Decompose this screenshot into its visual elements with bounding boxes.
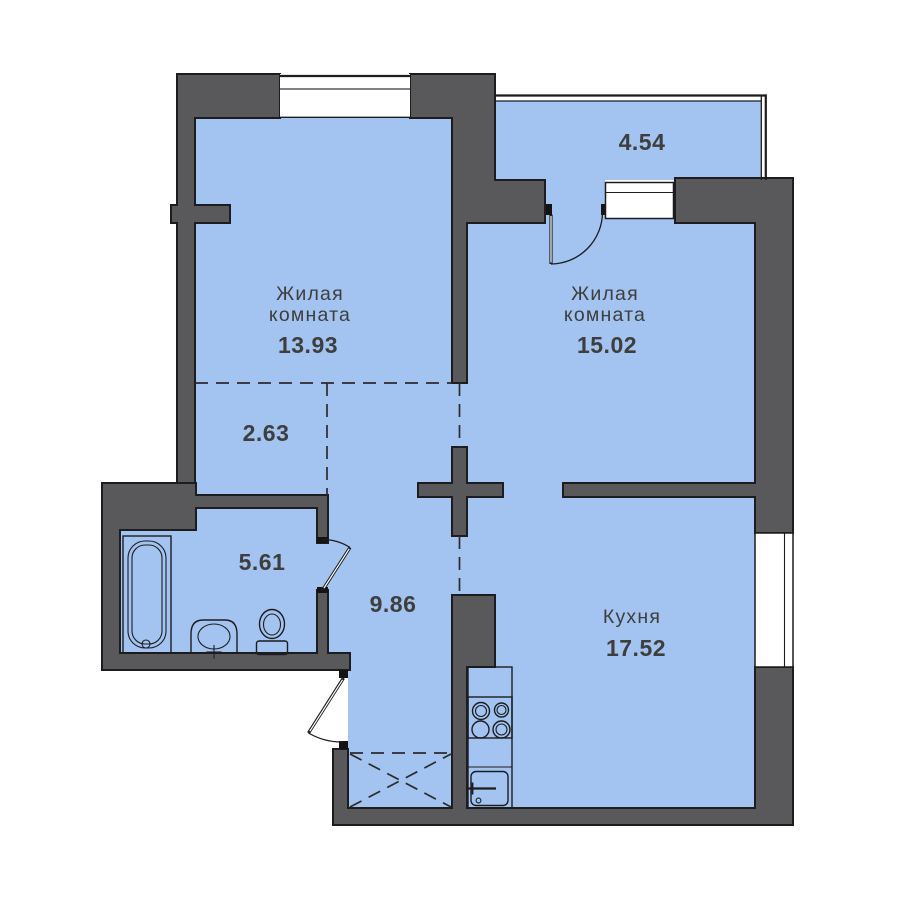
window-kitchen [755,533,793,667]
floor-balcony-passage [545,180,605,212]
balcony-area: 4.54 [619,129,666,155]
balcony-door-post-left [546,204,552,215]
floor-corridor-upper [328,383,467,670]
entrance-door [309,678,344,742]
living-room-1-name-line2: комната [269,304,351,326]
living-room-2-area: 15.02 [577,332,637,358]
entrance-door-post-top [339,670,348,678]
living-room-2-name-line1: Жилая [571,283,639,305]
living-room-1-name-line1: Жилая [276,283,344,305]
window-living-room-1 [280,74,410,118]
kitchen-name: Кухня [603,606,661,628]
living-room-2-label: Жилая комната 15.02 [564,283,646,358]
floor-plan-drawing: Жилая комната 13.93 Жилая комната 15.02 … [0,0,900,900]
living-room-1-area: 13.93 [278,332,338,358]
bathroom-area: 5.61 [239,549,286,575]
kitchen-area: 17.52 [606,635,666,661]
window-living-room-2 [606,183,674,219]
corridor-area: 9.86 [370,591,417,617]
floor-plan-page: Жилая комната 13.93 Жилая комната 15.02 … [0,0,900,900]
hallway-area: 2.63 [243,420,290,446]
living-room-2-name-line2: комната [564,304,646,326]
